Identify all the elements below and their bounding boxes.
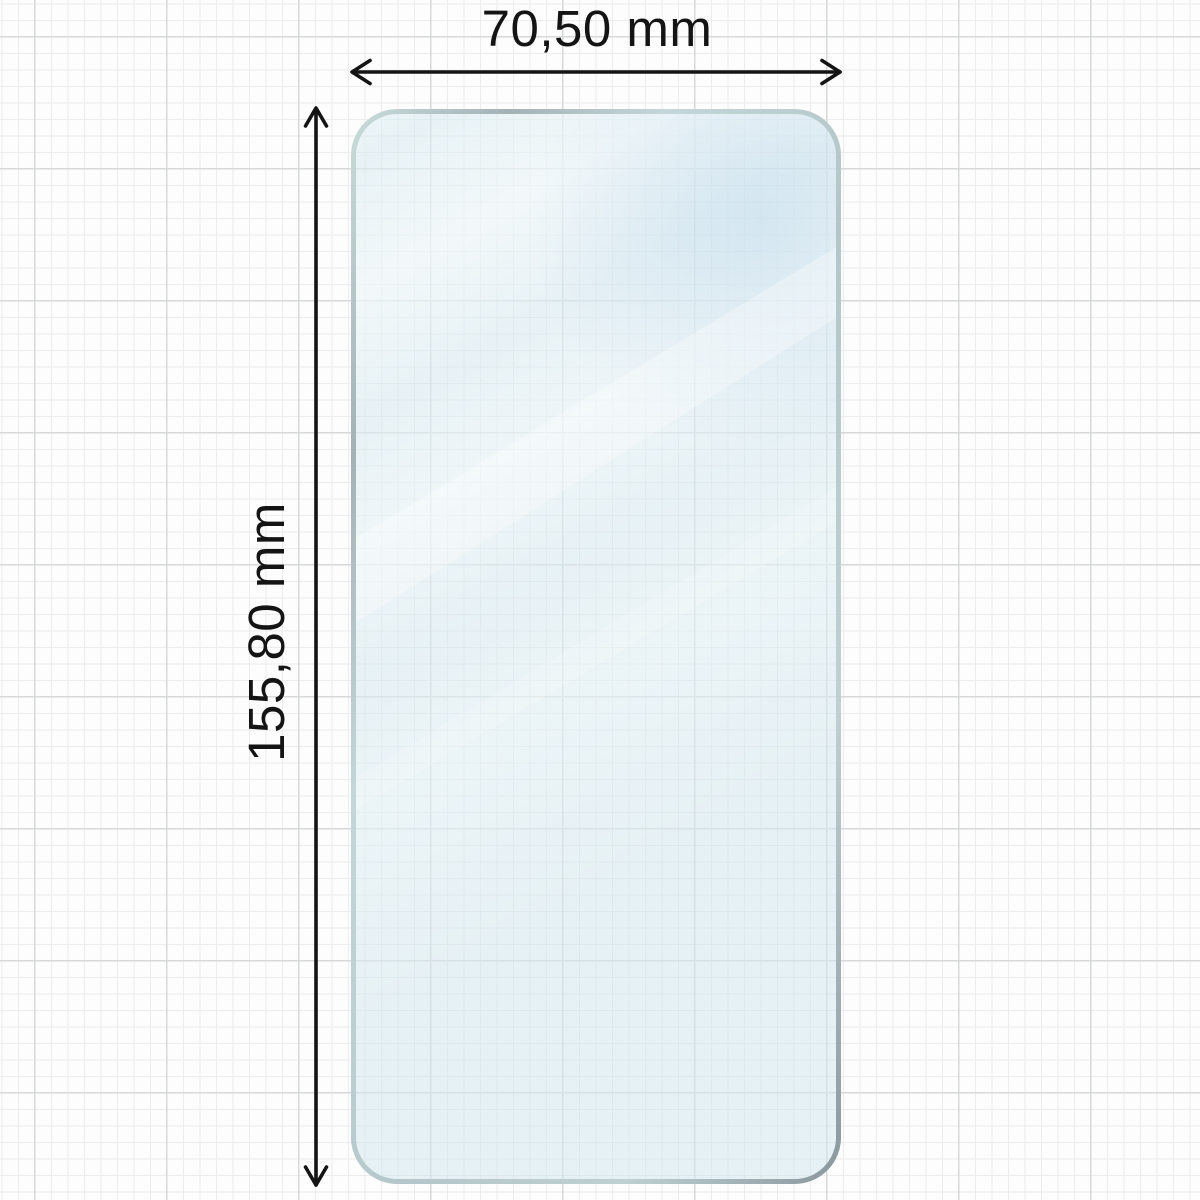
height-dimension-label: 155,80 mm xyxy=(238,502,295,762)
product-dimension-diagram: 70,50 mm 155,80 mm xyxy=(0,0,1200,1200)
height-dimension xyxy=(306,108,327,1185)
screen-protector-glass xyxy=(352,112,840,1182)
glass-corner-glow xyxy=(354,112,839,672)
width-dimension xyxy=(352,61,840,84)
width-dimension-label: 70,50 mm xyxy=(482,0,713,57)
diagram-svg: 70,50 mm 155,80 mm xyxy=(0,0,1200,1200)
